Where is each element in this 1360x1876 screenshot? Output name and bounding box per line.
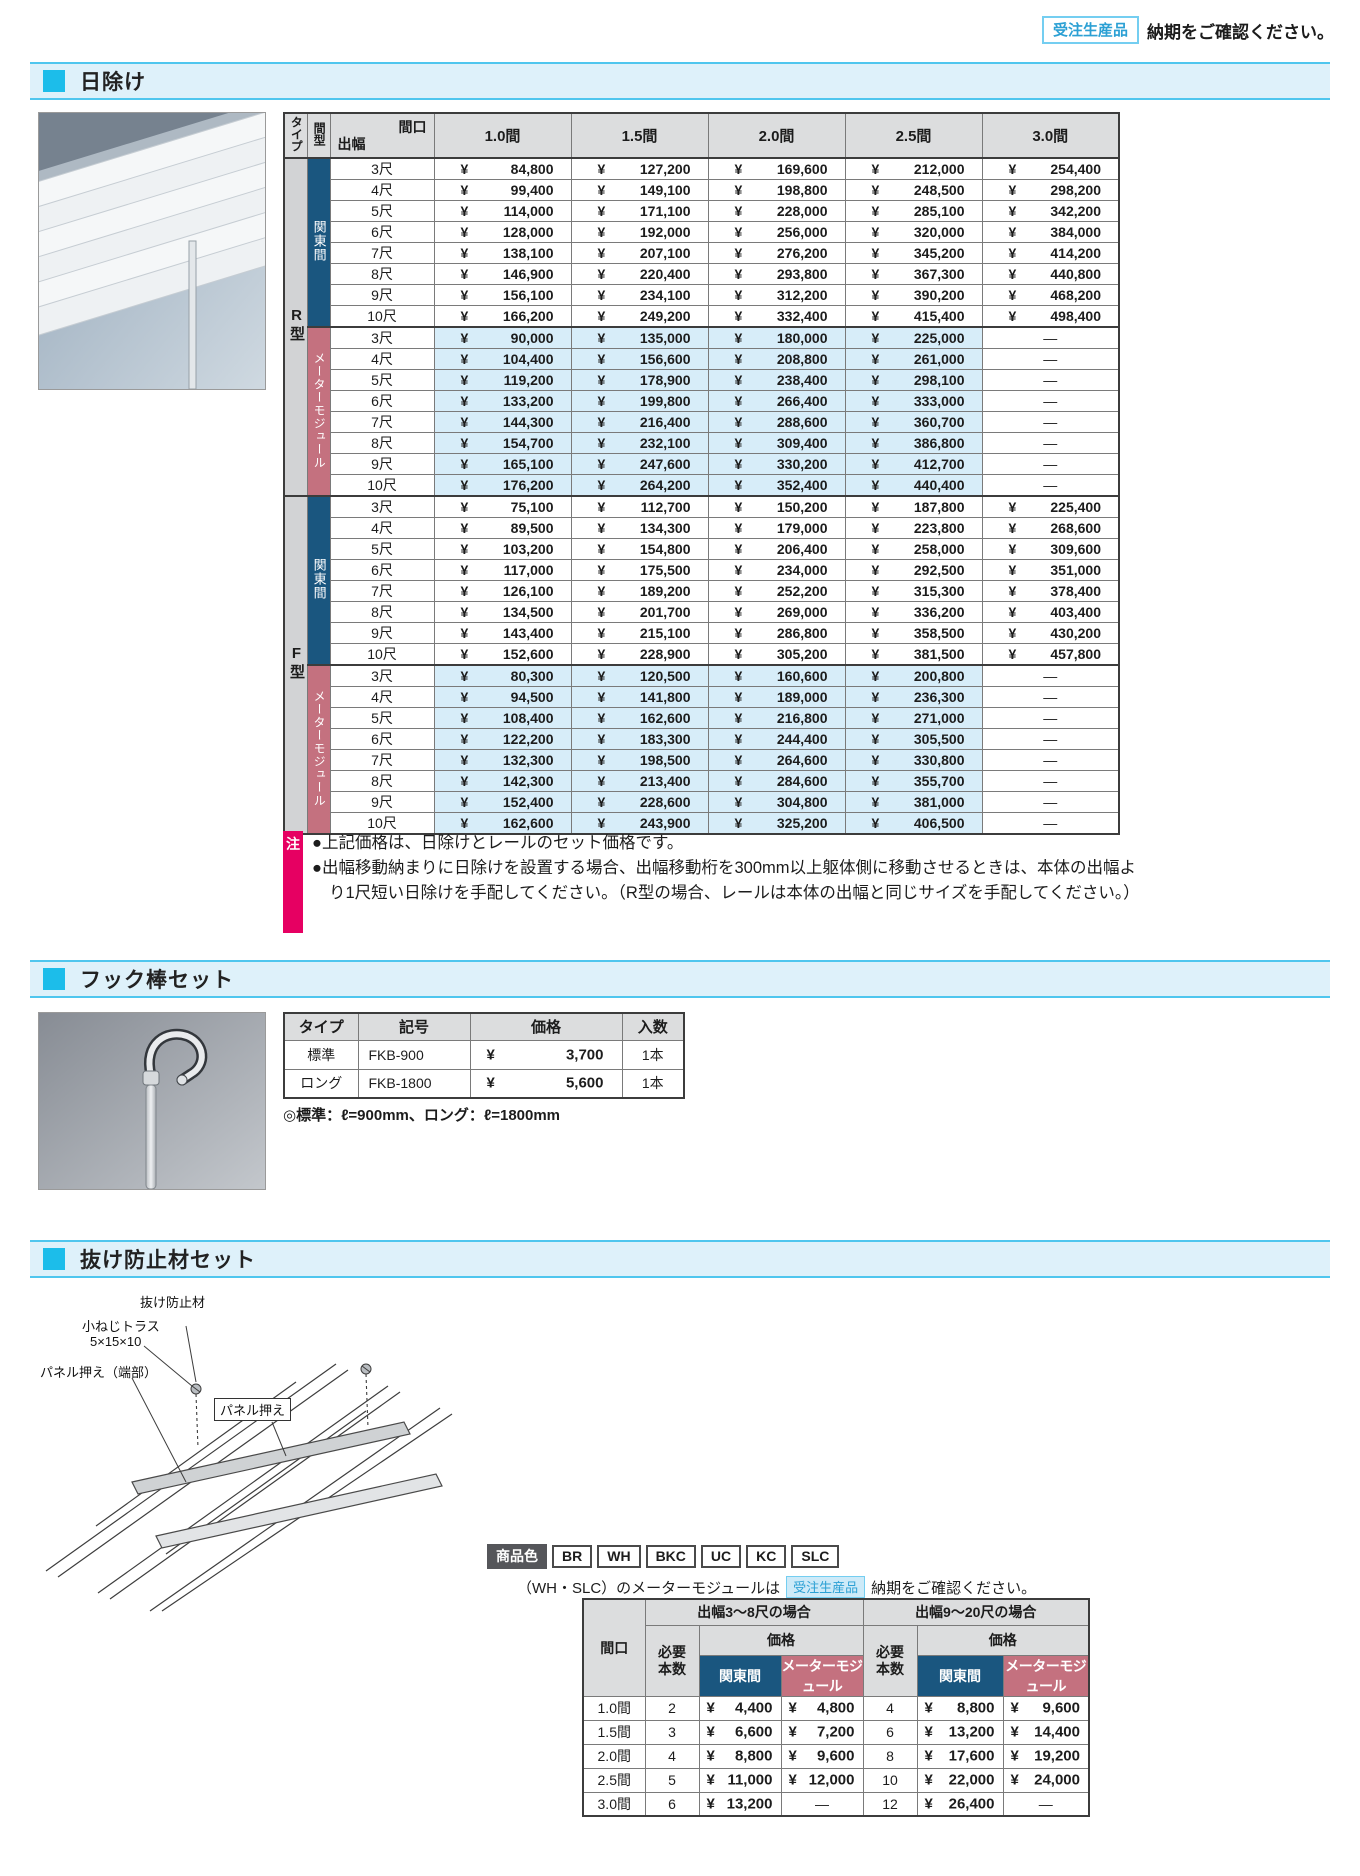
price-value: 351,000	[1050, 562, 1101, 578]
yen-sign: ¥	[735, 731, 743, 747]
section-title: 抜け防止材セット	[80, 1244, 256, 1274]
price-value: 234,100	[640, 287, 691, 303]
price-value: 228,000	[777, 203, 828, 219]
price-value: 143,400	[503, 625, 554, 641]
price-value: 133,200	[503, 393, 554, 409]
color-chip-list: BRWHBKCUCKCSLC	[552, 1545, 839, 1568]
yen-sign: ¥	[735, 456, 743, 472]
yen-sign: ¥	[598, 562, 606, 578]
price-cell: ¥99,400	[434, 180, 571, 201]
price-row: 10尺¥166,200¥249,200¥332,400¥415,400¥498,…	[284, 306, 1119, 328]
price-value: 381,000	[914, 794, 965, 810]
price-cell: ¥223,800	[845, 518, 982, 539]
kanto-header: 関東間	[699, 1655, 781, 1696]
yen-sign: ¥	[735, 203, 743, 219]
price-value: 112,700	[641, 499, 691, 515]
price-cell: ¥386,800	[845, 433, 982, 454]
yen-sign: ¥	[735, 752, 743, 768]
depth-cell: 9尺	[330, 792, 434, 813]
hook-header-price: 価格	[470, 1013, 622, 1040]
price-value: 330,200	[777, 456, 828, 472]
price-cell: ¥142,300	[434, 771, 571, 792]
yen-sign: ¥	[789, 1772, 797, 1789]
price-cell: ¥9,600	[1003, 1696, 1089, 1720]
note-marker: 注	[283, 831, 303, 933]
hook-photo-illustration	[39, 1013, 265, 1189]
col-header-2-5: 2.5間	[845, 113, 982, 158]
yen-sign: ¥	[735, 562, 743, 578]
col-header-3-0: 3.0間	[982, 113, 1119, 158]
section-header-hiyoke: 日除け	[30, 62, 1330, 100]
price-row: 7尺¥132,300¥198,500¥264,600¥330,800—	[284, 750, 1119, 771]
price-row: 9尺¥165,100¥247,600¥330,200¥412,700—	[284, 454, 1119, 475]
yen-sign: ¥	[1009, 161, 1017, 177]
price-cell: ¥133,200	[434, 391, 571, 412]
price-value: 120,500	[640, 668, 691, 684]
yen-sign: ¥	[735, 646, 743, 662]
diagram-label-screw: 小ねじトラス	[82, 1316, 160, 1335]
price-cell: ¥119,200	[434, 370, 571, 391]
price-cell: ¥258,000	[845, 539, 982, 560]
price-value: 440,800	[1050, 266, 1101, 282]
price-value: 276,200	[777, 245, 828, 261]
price-cell: ¥152,400	[434, 792, 571, 813]
depth-cell: 6尺	[330, 391, 434, 412]
price-cell: ¥228,900	[571, 644, 708, 666]
depth-cell: 9尺	[330, 623, 434, 644]
price-cell: ¥330,200	[708, 454, 845, 475]
price-value: 165,100	[503, 456, 554, 472]
price-value: 127,200	[640, 161, 691, 177]
price-value: 5,600	[566, 1075, 604, 1092]
price-cell: ¥264,200	[571, 475, 708, 497]
price-cell: ¥160,600	[708, 665, 845, 687]
depth-cell: 3尺	[330, 158, 434, 180]
price-value: 183,300	[640, 731, 691, 747]
price-cell: ¥141,800	[571, 687, 708, 708]
yen-sign: ¥	[735, 435, 743, 451]
price-value: 89,500	[511, 520, 554, 536]
price-cell: ¥412,700	[845, 454, 982, 475]
yen-sign: ¥	[598, 414, 606, 430]
yen-sign: ¥	[872, 203, 880, 219]
price-value: 333,000	[914, 393, 965, 409]
yen-sign: ¥	[707, 1772, 715, 1789]
price-value: 386,800	[914, 435, 965, 451]
price-value: 22,000	[949, 1772, 995, 1789]
price-row: 10尺¥152,600¥228,900¥305,200¥381,500¥457,…	[284, 644, 1119, 666]
yen-sign: ¥	[461, 499, 469, 515]
price-cell: —	[982, 454, 1119, 475]
col-header-2-0: 2.0間	[708, 113, 845, 158]
type-cell: R型	[284, 158, 307, 496]
price-cell: —	[982, 433, 1119, 454]
price-cell: ¥189,200	[571, 581, 708, 602]
price-cell: ¥215,100	[571, 623, 708, 644]
span-cell: 関東間	[307, 158, 330, 327]
price-cell: ¥169,600	[708, 158, 845, 180]
hook-price-cell: ¥5,600	[470, 1069, 622, 1098]
yen-sign: ¥	[707, 1795, 715, 1812]
price-cell: ¥305,500	[845, 729, 982, 750]
yen-sign: ¥	[707, 1700, 715, 1717]
price-value: 215,100	[640, 625, 691, 641]
yen-sign: ¥	[735, 604, 743, 620]
price-value: 358,500	[914, 625, 965, 641]
hook-header-type: タイプ	[284, 1013, 358, 1040]
price-value: 189,000	[777, 689, 828, 705]
price-cell: —	[982, 687, 1119, 708]
note-text: ●上記価格は、日除けとレールのセット価格です。 ●出幅移動納まりに日除けを設置す…	[312, 831, 1139, 933]
price-cell: ¥171,100	[571, 201, 708, 222]
price-row: 6尺¥117,000¥175,500¥234,000¥292,500¥351,0…	[284, 560, 1119, 581]
yen-sign: ¥	[872, 308, 880, 324]
yen-sign: ¥	[598, 393, 606, 409]
price-value: 149,100	[640, 182, 691, 198]
price-cell: ¥248,500	[845, 180, 982, 201]
price-row: 6尺¥122,200¥183,300¥244,400¥305,500—	[284, 729, 1119, 750]
price-row: F型関東間3尺¥75,100¥112,700¥150,200¥187,800¥2…	[284, 496, 1119, 518]
yen-sign: ¥	[1009, 203, 1017, 219]
price-cell: ¥252,200	[708, 581, 845, 602]
price-cell: ¥126,100	[434, 581, 571, 602]
section-header-nuke: 抜け防止材セット	[30, 1240, 1330, 1278]
installation-diagram: 抜け防止材 小ねじトラス 5×15×10 パネル押え（端部） パネル押え	[36, 1286, 472, 1612]
yen-sign: ¥	[735, 351, 743, 367]
price-row: 9尺¥143,400¥215,100¥286,800¥358,500¥430,2…	[284, 623, 1119, 644]
price-cell: ¥309,400	[708, 433, 845, 454]
yen-sign: ¥	[735, 520, 743, 536]
yen-sign: ¥	[872, 266, 880, 282]
price-value: 309,400	[777, 435, 828, 451]
yen-sign: ¥	[461, 562, 469, 578]
price-cell: —	[982, 370, 1119, 391]
price-cell: ¥228,600	[571, 792, 708, 813]
price-value: 17,600	[949, 1748, 995, 1765]
price-value: 457,800	[1050, 646, 1101, 662]
yen-sign: ¥	[925, 1795, 933, 1812]
yen-sign: ¥	[461, 625, 469, 641]
yen-sign: ¥	[461, 541, 469, 557]
yen-sign: ¥	[707, 1724, 715, 1741]
yen-sign: ¥	[598, 541, 606, 557]
yen-sign: ¥	[598, 351, 606, 367]
depth-cell: 5尺	[330, 201, 434, 222]
yen-sign: ¥	[872, 372, 880, 388]
price-cell: ¥22,000	[917, 1768, 1003, 1792]
price-row: R型関東間3尺¥84,800¥127,200¥169,600¥212,000¥2…	[284, 158, 1119, 180]
price-value: 176,200	[503, 477, 554, 493]
section-header-hook: フック棒セット	[30, 960, 1330, 998]
yen-sign: ¥	[735, 393, 743, 409]
price-value: 180,000	[777, 330, 828, 346]
price-cell: ¥244,400	[708, 729, 845, 750]
price-cell: ¥134,300	[571, 518, 708, 539]
price-value: 14,400	[1034, 1724, 1080, 1741]
maguchi-cell: 2.0間	[583, 1744, 645, 1768]
price-cell: ¥298,200	[982, 180, 1119, 201]
price-row: 7尺¥144,300¥216,400¥288,600¥360,700—	[284, 412, 1119, 433]
price-value: 142,300	[503, 773, 554, 789]
price-value: 440,400	[914, 477, 965, 493]
meter-module-order-note: （WH・SLC）のメーターモジュールは 受注生産品 納期をご確認ください。	[517, 1576, 1036, 1598]
yen-sign: ¥	[461, 731, 469, 747]
hook-row: ロングFKB-1800¥5,6001本	[284, 1069, 684, 1098]
yen-sign: ¥	[598, 330, 606, 346]
yen-sign: ¥	[1009, 245, 1017, 261]
price-value: 80,300	[511, 668, 554, 684]
price-cell: ¥367,300	[845, 264, 982, 285]
yen-sign: ¥	[487, 1075, 495, 1092]
depth-cell: 9尺	[330, 454, 434, 475]
yen-sign: ¥	[461, 351, 469, 367]
price-row: 6尺¥133,200¥199,800¥266,400¥333,000—	[284, 391, 1119, 412]
price-cell: ¥216,800	[708, 708, 845, 729]
price-value: 128,000	[503, 224, 554, 240]
price-value: 312,200	[777, 287, 828, 303]
price-cell: ¥199,800	[571, 391, 708, 412]
awning-product-photo	[38, 112, 266, 390]
yen-sign: ¥	[598, 731, 606, 747]
yen-sign: ¥	[461, 308, 469, 324]
price-value: 430,200	[1050, 625, 1101, 641]
price-row: 8尺¥142,300¥213,400¥284,600¥355,700—	[284, 771, 1119, 792]
price-cell: ¥128,000	[434, 222, 571, 243]
price-cell: ¥234,000	[708, 560, 845, 581]
depth-cell: 8尺	[330, 771, 434, 792]
price-value: 200,800	[914, 668, 965, 684]
count-cell: 5	[645, 1768, 699, 1792]
price-cell: ¥8,800	[699, 1744, 781, 1768]
maguchi-cell: 1.5間	[583, 1720, 645, 1744]
price-cell: ¥154,700	[434, 433, 571, 454]
price-value: 134,300	[640, 520, 691, 536]
hook-type-cell: 標準	[284, 1040, 358, 1069]
price-value: 4,400	[735, 1700, 773, 1717]
price-value: 3,700	[566, 1046, 604, 1063]
price-cell: ¥132,300	[434, 750, 571, 771]
yen-sign: ¥	[872, 456, 880, 472]
price-value: 162,600	[503, 815, 554, 831]
hook-row: 標準FKB-900¥3,7001本	[284, 1040, 684, 1069]
section-title: 日除け	[80, 66, 146, 96]
debaba-corner-label: 出幅	[338, 134, 366, 154]
price-value: 330,800	[914, 752, 965, 768]
price-value: 345,200	[914, 245, 965, 261]
price-value: 355,700	[914, 773, 965, 789]
price-value: 154,800	[640, 541, 691, 557]
col-header-1-0: 1.0間	[434, 113, 571, 158]
yen-sign: ¥	[872, 520, 880, 536]
price-row: メーターモジュール3尺¥80,300¥120,500¥160,600¥200,8…	[284, 665, 1119, 687]
yen-sign: ¥	[1009, 224, 1017, 240]
yen-sign: ¥	[461, 646, 469, 662]
yen-sign: ¥	[872, 435, 880, 451]
yen-sign: ¥	[872, 583, 880, 599]
yen-sign: ¥	[598, 710, 606, 726]
price-cell: ¥336,200	[845, 602, 982, 623]
price-cell: ¥187,800	[845, 496, 982, 518]
price-cell: ¥108,400	[434, 708, 571, 729]
price-cell: ¥75,100	[434, 496, 571, 518]
price-value: 264,200	[640, 477, 691, 493]
price-cell: ¥254,400	[982, 158, 1119, 180]
yen-sign: ¥	[461, 689, 469, 705]
yen-sign: ¥	[461, 435, 469, 451]
yen-sign: ¥	[872, 668, 880, 684]
yen-sign: ¥	[1011, 1772, 1019, 1789]
price-value: 207,100	[640, 245, 691, 261]
yen-sign: ¥	[735, 477, 743, 493]
product-colors-row: 商品色 BRWHBKCUCKCSLC	[487, 1544, 839, 1569]
group-header-1: 出幅3～8尺の場合	[645, 1599, 863, 1625]
yen-sign: ¥	[735, 372, 743, 388]
yen-sign: ¥	[598, 266, 606, 282]
price-row: 4尺¥89,500¥134,300¥179,000¥223,800¥268,60…	[284, 518, 1119, 539]
price-value: 8,800	[735, 1748, 773, 1765]
price-cell: ¥80,300	[434, 665, 571, 687]
price-cell: ¥117,000	[434, 560, 571, 581]
price-cell: ¥384,000	[982, 222, 1119, 243]
price-value: 141,800	[640, 689, 691, 705]
yen-sign: ¥	[598, 794, 606, 810]
price-value: 305,200	[777, 646, 828, 662]
price-cell: ¥213,400	[571, 771, 708, 792]
price-value: 254,400	[1050, 161, 1101, 177]
price-cell: ¥333,000	[845, 391, 982, 412]
price-cell: ¥468,200	[982, 285, 1119, 306]
yen-sign: ¥	[598, 287, 606, 303]
price-value: 94,500	[511, 689, 554, 705]
hook-header-qty: 入数	[622, 1013, 684, 1040]
price-cell: ¥149,100	[571, 180, 708, 201]
yen-sign: ¥	[735, 773, 743, 789]
price-value: 261,000	[914, 351, 965, 367]
price-value: 232,100	[640, 435, 691, 451]
price-cell: ¥143,400	[434, 623, 571, 644]
price-cell: ¥13,200	[699, 1792, 781, 1816]
count-cell: 8	[863, 1744, 917, 1768]
price-cell: ¥440,800	[982, 264, 1119, 285]
price-cell: ¥266,400	[708, 391, 845, 412]
made-to-order-badge: 受注生産品	[1042, 16, 1139, 44]
price-cell: ¥9,600	[781, 1744, 863, 1768]
price-value: 285,100	[914, 203, 965, 219]
color-chip: WH	[597, 1545, 640, 1568]
price-value: 269,000	[777, 604, 828, 620]
yen-sign: ¥	[789, 1748, 797, 1765]
group-header-2: 出幅9～20尺の場合	[863, 1599, 1089, 1625]
price-cell: ¥200,800	[845, 665, 982, 687]
price-cell: ¥293,800	[708, 264, 845, 285]
yen-sign: ¥	[735, 266, 743, 282]
depth-cell: 5尺	[330, 539, 434, 560]
price-cell: ¥360,700	[845, 412, 982, 433]
price-value: 412,700	[914, 456, 965, 472]
yen-sign: ¥	[598, 689, 606, 705]
diagram-label-panel: パネル押え	[214, 1398, 291, 1421]
price-cell: ¥192,000	[571, 222, 708, 243]
price-cell: ¥342,200	[982, 201, 1119, 222]
price-value: 166,200	[503, 308, 554, 324]
price-value: 352,400	[777, 477, 828, 493]
price-value: 414,200	[1050, 245, 1101, 261]
price-cell: ¥249,200	[571, 306, 708, 328]
yen-sign: ¥	[598, 477, 606, 493]
yen-sign: ¥	[1009, 583, 1017, 599]
yen-sign: ¥	[925, 1772, 933, 1789]
hook-qty-cell: 1本	[622, 1040, 684, 1069]
yen-sign: ¥	[598, 456, 606, 472]
price-value: 201,700	[640, 604, 691, 620]
price-cell: ¥165,100	[434, 454, 571, 475]
diagram-label-panel-edge: パネル押え（端部）	[40, 1362, 157, 1381]
price-cell: ¥312,200	[708, 285, 845, 306]
color-chip: BKC	[646, 1545, 696, 1568]
yen-sign: ¥	[872, 541, 880, 557]
price-row: 4尺¥104,400¥156,600¥208,800¥261,000—	[284, 349, 1119, 370]
price-cell: ¥298,100	[845, 370, 982, 391]
span-cell: 関東間	[307, 496, 330, 665]
depth-cell: 7尺	[330, 581, 434, 602]
price-value: 415,400	[914, 308, 965, 324]
nuke-row: 3.0間6¥13,200—12¥26,400—	[583, 1792, 1089, 1816]
span-column-header: 間型	[307, 113, 330, 158]
note-line-2: ●出幅移動納まりに日除けを設置する場合、出幅移動桁を300mm以上躯体側に移動さ…	[312, 856, 1139, 906]
hook-qty-cell: 1本	[622, 1069, 684, 1098]
price-row: 5尺¥119,200¥178,900¥238,400¥298,100—	[284, 370, 1119, 391]
price-cell: ¥4,800	[781, 1696, 863, 1720]
price-cell: ¥127,200	[571, 158, 708, 180]
count-cell: 6	[863, 1720, 917, 1744]
yen-sign: ¥	[735, 245, 743, 261]
yen-sign: ¥	[461, 372, 469, 388]
price-cell: ¥415,400	[845, 306, 982, 328]
price-cell: ¥114,000	[434, 201, 571, 222]
yen-sign: ¥	[735, 287, 743, 303]
price-cell: —	[982, 771, 1119, 792]
catalog-page: 受注生産品 納期をご確認ください。 日除け	[0, 0, 1360, 1876]
price-cell: ¥13,200	[917, 1720, 1003, 1744]
color-chip: KC	[746, 1545, 786, 1568]
nuke-row: 2.0間4¥8,800¥9,6008¥17,600¥19,200	[583, 1744, 1089, 1768]
price-value: 132,300	[503, 752, 554, 768]
hook-type-cell: ロング	[284, 1069, 358, 1098]
price-cell: ¥358,500	[845, 623, 982, 644]
depth-cell: 5尺	[330, 708, 434, 729]
depth-cell: 3尺	[330, 496, 434, 518]
price-value: 360,700	[914, 414, 965, 430]
price-cell: ¥430,200	[982, 623, 1119, 644]
price-cell: ¥378,400	[982, 581, 1119, 602]
price-cell: ¥261,000	[845, 349, 982, 370]
depth-cell: 4尺	[330, 349, 434, 370]
yen-sign: ¥	[598, 203, 606, 219]
price-cell: ¥232,100	[571, 433, 708, 454]
meter-header: メーターモジュール	[1003, 1655, 1089, 1696]
color-chip: BR	[552, 1545, 592, 1568]
price-row: 4尺¥99,400¥149,100¥198,800¥248,500¥298,20…	[284, 180, 1119, 201]
yen-sign: ¥	[735, 541, 743, 557]
price-cell: ¥26,400	[917, 1792, 1003, 1816]
price-value: 288,600	[777, 414, 828, 430]
yen-sign: ¥	[872, 393, 880, 409]
maguchi-cell: 3.0間	[583, 1792, 645, 1816]
maguchi-cell: 2.5間	[583, 1768, 645, 1792]
price-cell: ¥176,200	[434, 475, 571, 497]
price-cell: ¥198,500	[571, 750, 708, 771]
price-cell: ¥330,800	[845, 750, 982, 771]
